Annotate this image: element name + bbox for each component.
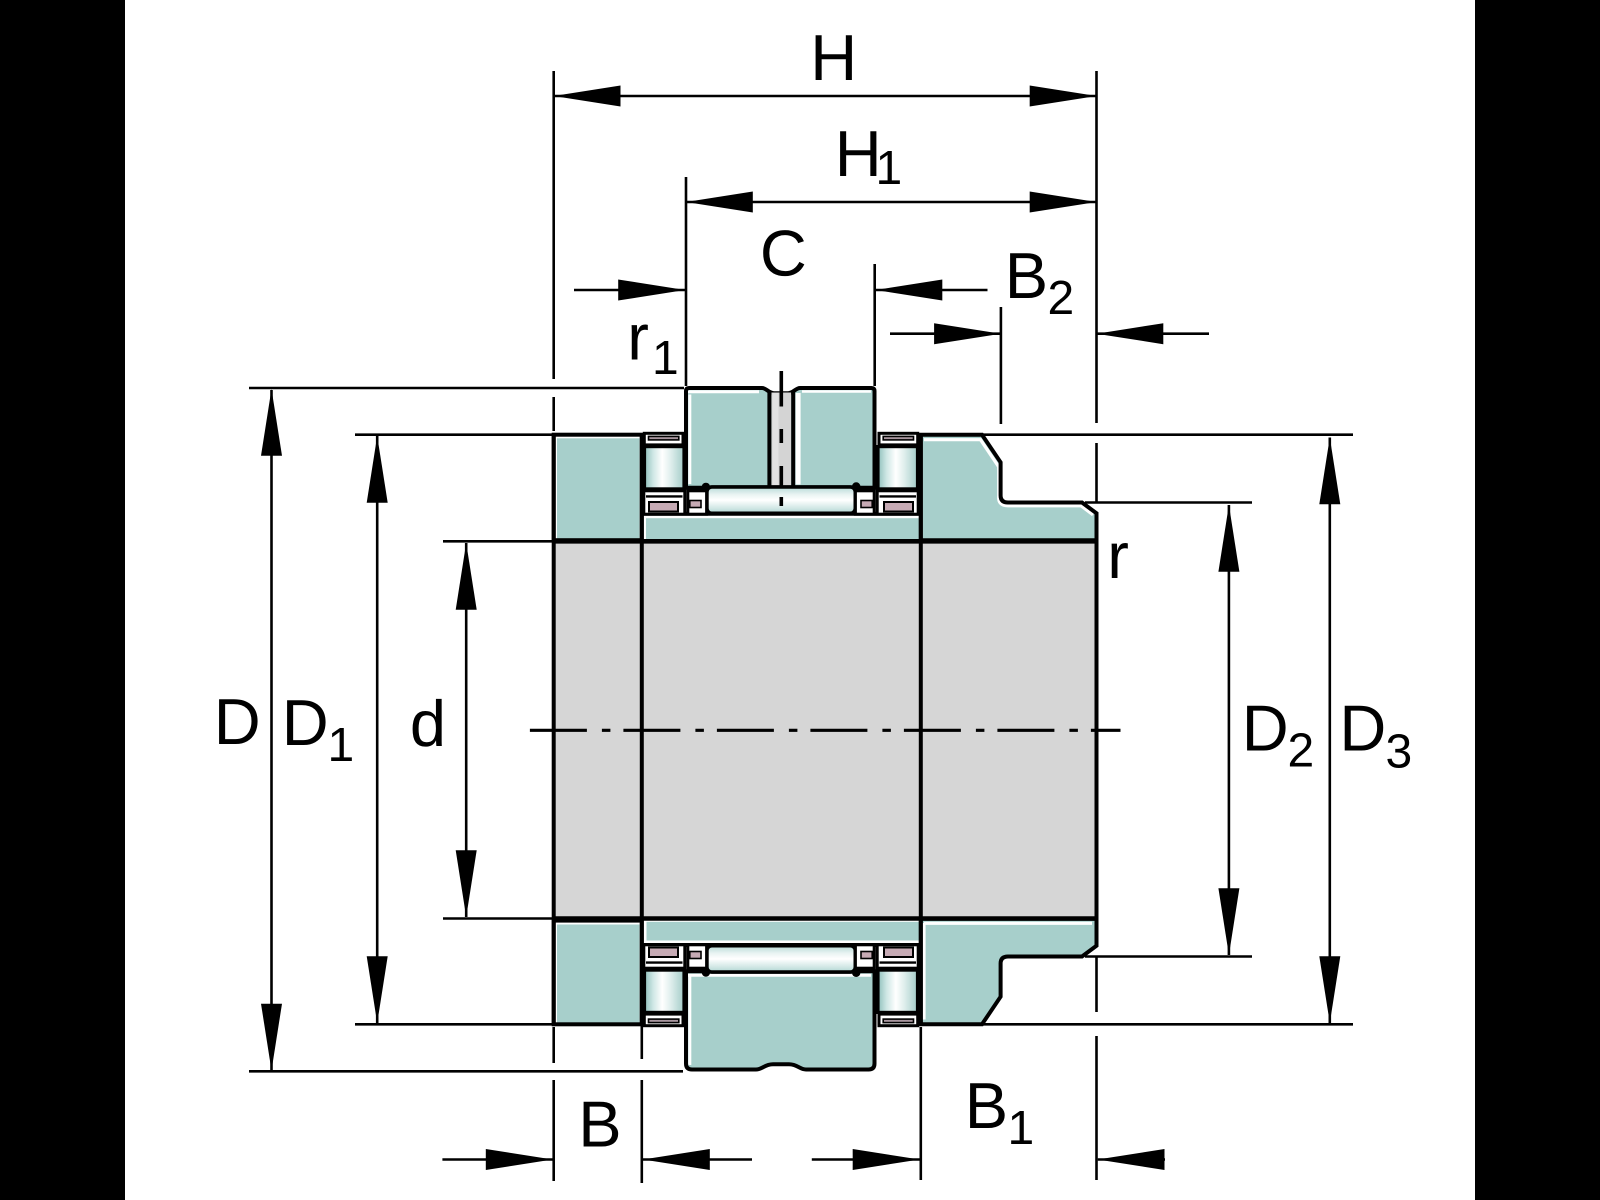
- svg-text:B: B: [578, 1088, 621, 1161]
- svg-text:D: D: [1339, 691, 1386, 764]
- svg-text:2: 2: [1048, 272, 1075, 325]
- svg-text:D: D: [1242, 691, 1289, 764]
- svg-text:2: 2: [1288, 725, 1315, 778]
- svg-text:1: 1: [652, 332, 679, 385]
- svg-text:3: 3: [1386, 726, 1413, 779]
- svg-text:H: H: [810, 21, 857, 94]
- svg-text:r: r: [1107, 519, 1129, 592]
- svg-text:1: 1: [1008, 1102, 1035, 1155]
- svg-text:D: D: [214, 685, 261, 758]
- svg-text:r: r: [627, 301, 649, 374]
- svg-text:B: B: [965, 1069, 1008, 1142]
- svg-text:C: C: [760, 217, 807, 290]
- svg-text:1: 1: [328, 719, 355, 772]
- svg-text:B: B: [1005, 239, 1048, 312]
- svg-text:d: d: [410, 687, 446, 760]
- svg-text:D: D: [282, 686, 329, 759]
- svg-text:1: 1: [876, 142, 903, 195]
